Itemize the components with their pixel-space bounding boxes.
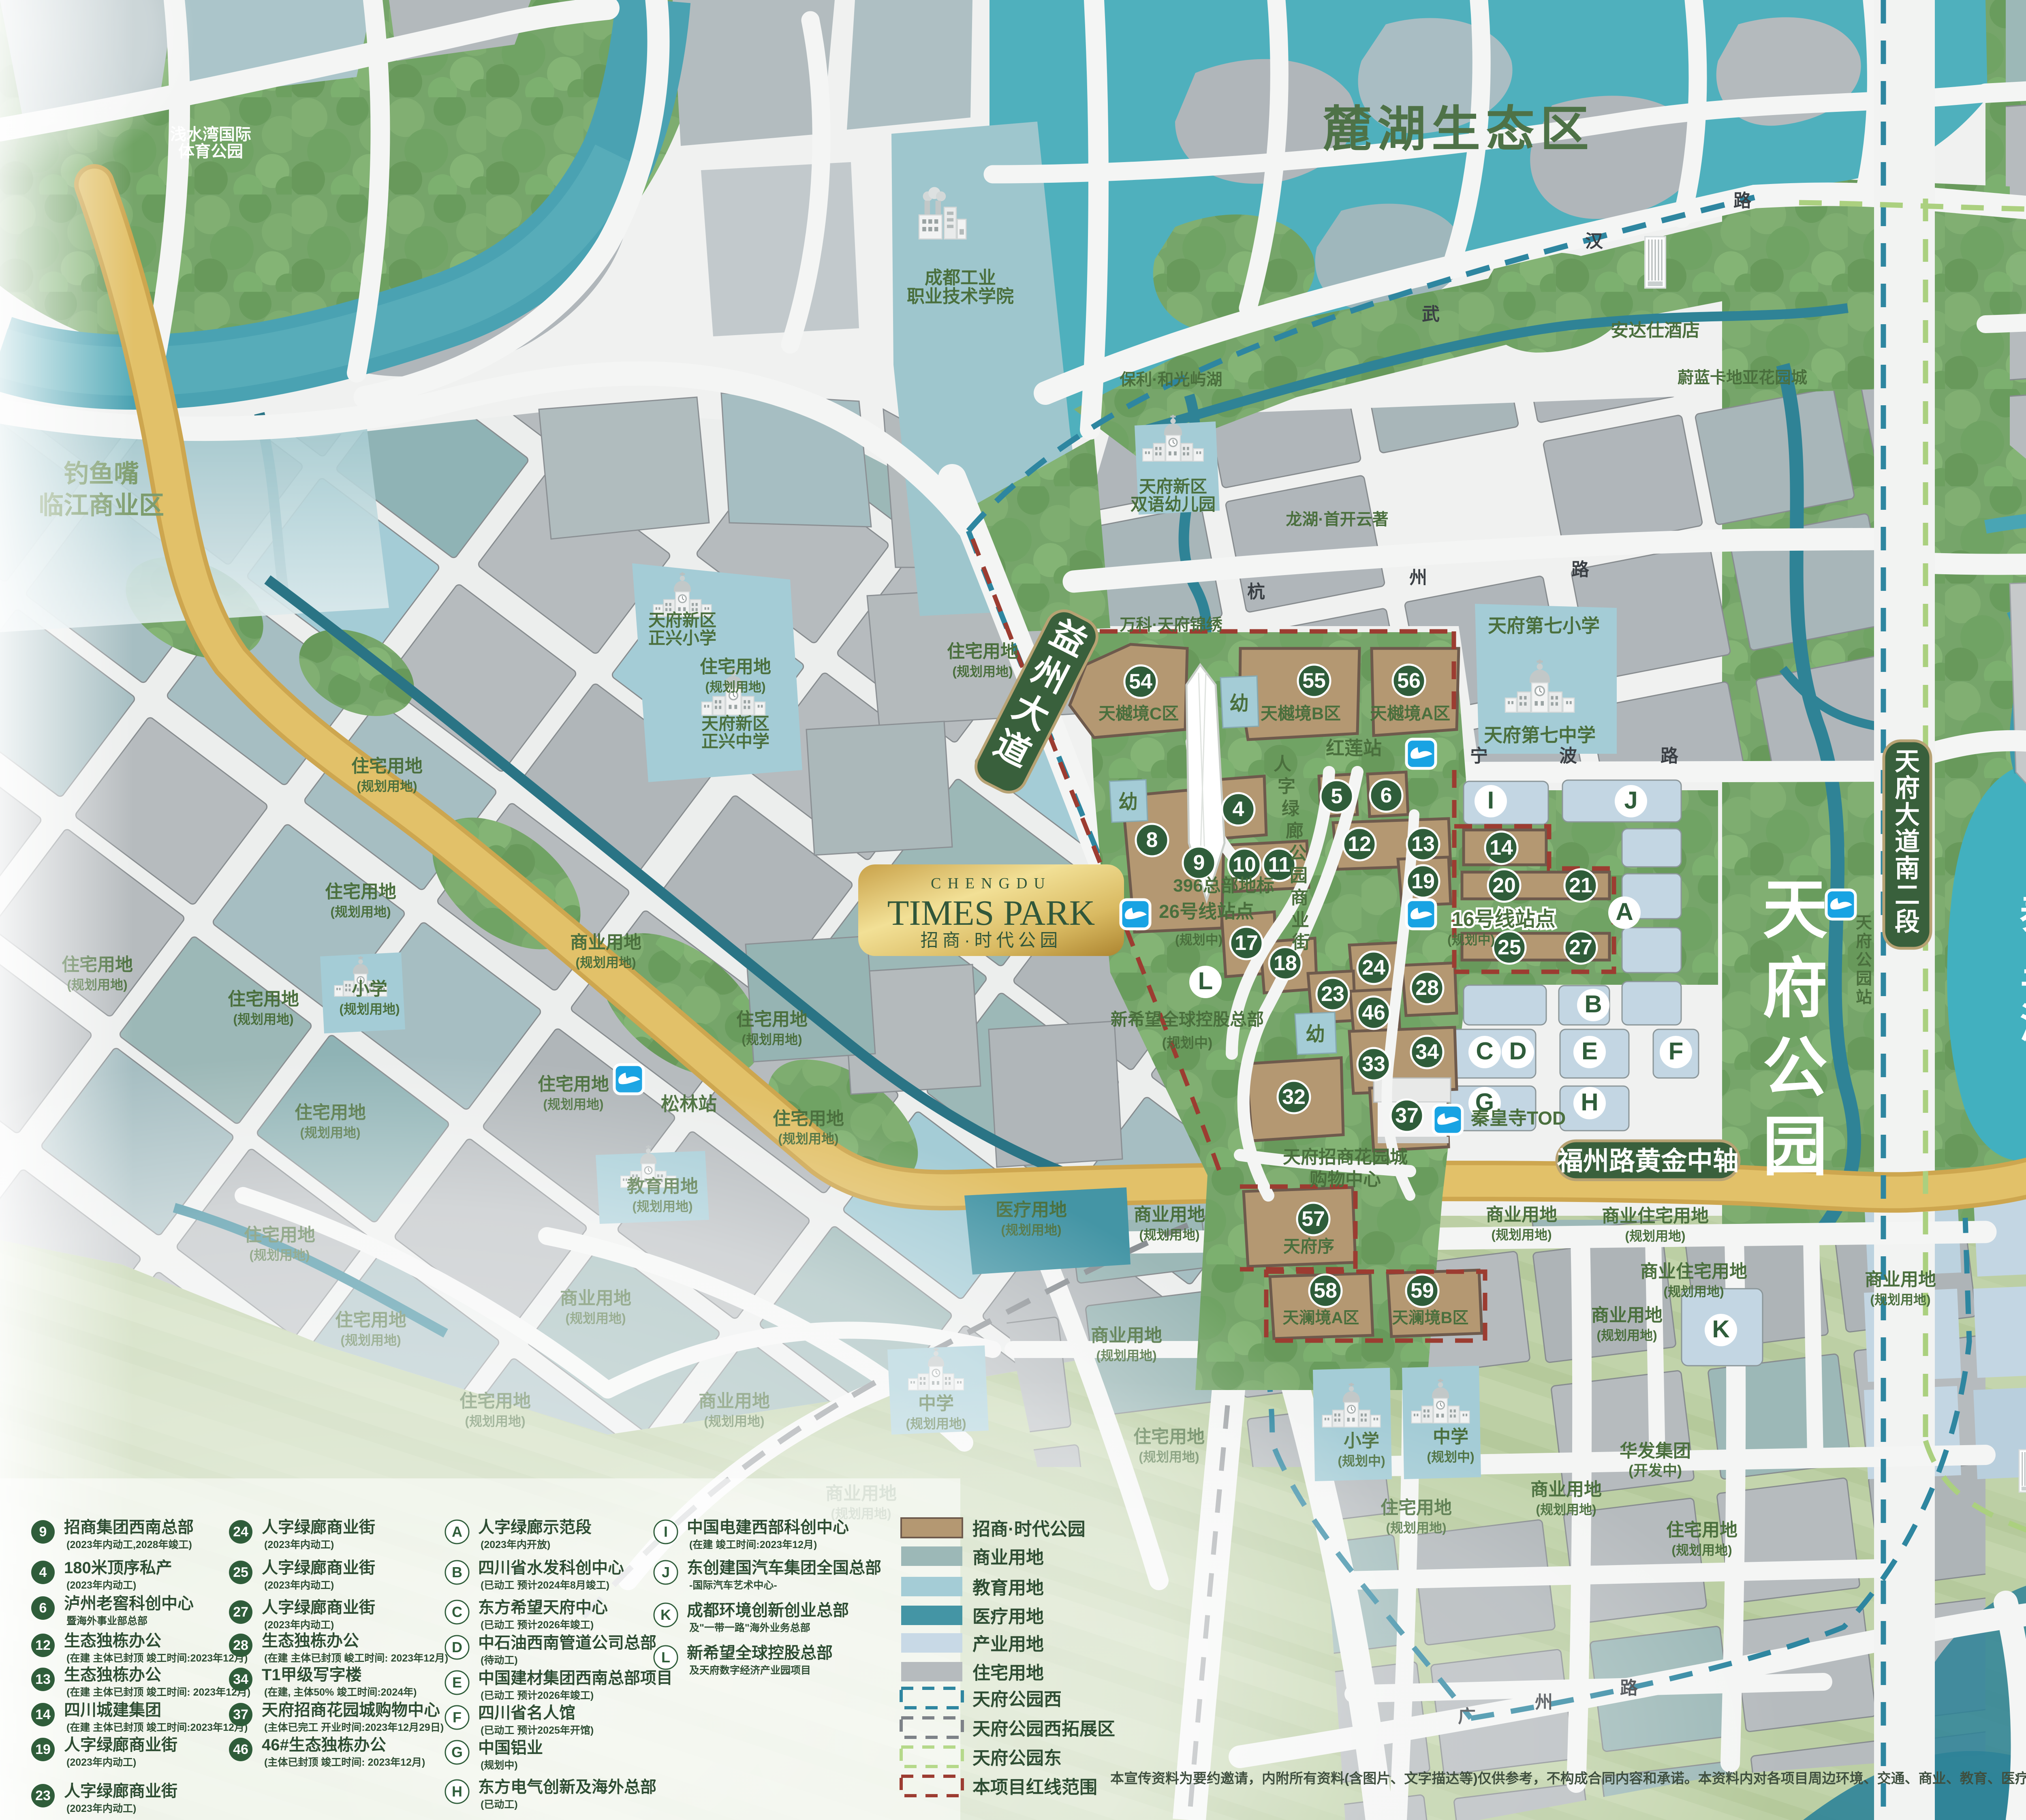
- svg-text:生态独栋办公: 生态独栋办公: [262, 1632, 359, 1650]
- svg-text:小学: 小学: [352, 979, 387, 999]
- svg-text:天府公园西: 天府公园西: [972, 1690, 1062, 1709]
- svg-text:H: H: [452, 1783, 462, 1800]
- svg-text:人字绿廊商业街: 人字绿廊商业街: [262, 1559, 375, 1577]
- svg-text:大: 大: [1895, 801, 1920, 829]
- svg-text:正兴小学: 正兴小学: [648, 629, 716, 648]
- svg-text:12: 12: [1348, 832, 1371, 856]
- svg-text:9: 9: [1193, 851, 1205, 875]
- svg-text:产业用地: 产业用地: [972, 1634, 1044, 1654]
- svg-text:4: 4: [39, 1565, 47, 1580]
- svg-text:园: 园: [1290, 866, 1308, 885]
- svg-text:25: 25: [233, 1565, 248, 1580]
- svg-text:万科·天府锦绣: 万科·天府锦绣: [1120, 616, 1222, 634]
- svg-text:58: 58: [1314, 1279, 1337, 1302]
- svg-text:(规划中): (规划中): [1175, 932, 1222, 947]
- svg-text:及天府数字经济产业园项目: 及天府数字经济产业园项目: [689, 1664, 811, 1676]
- svg-text:(规划用地): (规划用地): [330, 905, 391, 919]
- svg-text:A: A: [1616, 898, 1633, 925]
- svg-text:幼: 幼: [1306, 1024, 1325, 1045]
- svg-text:双语幼儿园: 双语幼儿园: [1131, 495, 1216, 514]
- svg-text:南: 南: [1895, 855, 1920, 883]
- svg-text:住宅用地: 住宅用地: [700, 657, 771, 677]
- svg-text:天樾境A区: 天樾境A区: [1370, 704, 1450, 723]
- svg-text:(规划中): (规划中): [1162, 1035, 1213, 1051]
- svg-text:56: 56: [1397, 669, 1421, 693]
- svg-text:路: 路: [1571, 560, 1590, 580]
- svg-text:中国电建西部科创中心: 中国电建西部科创中心: [687, 1518, 849, 1536]
- svg-text:46: 46: [233, 1742, 248, 1757]
- svg-text:路: 路: [1661, 746, 1679, 766]
- svg-text:9: 9: [39, 1524, 47, 1540]
- svg-text:5: 5: [1331, 785, 1343, 808]
- svg-text:(规划用地): (规划用地): [1671, 1543, 1732, 1557]
- svg-text:46#生态独栋办公: 46#生态独栋办公: [262, 1736, 386, 1754]
- svg-text:F: F: [1669, 1037, 1684, 1065]
- svg-text:(2023年内动工): (2023年内动工): [66, 1579, 136, 1591]
- svg-text:商业住宅用地: 商业住宅用地: [1640, 1262, 1747, 1281]
- svg-text:秦: 秦: [2020, 892, 2026, 937]
- svg-text:(在建 主体已封顶 峻工时间: 2023年12月): (在建 主体已封顶 峻工时间: 2023年12月): [264, 1652, 448, 1664]
- svg-text:(主体已完工 开业时间:2023年12月29日): (主体已完工 开业时间:2023年12月29日): [264, 1722, 444, 1733]
- svg-text:G: G: [451, 1744, 463, 1760]
- svg-text:东方希望天府中心: 东方希望天府中心: [478, 1599, 608, 1617]
- svg-text:红莲站: 红莲站: [1326, 738, 1382, 759]
- svg-text:(规划用地): (规划用地): [339, 1002, 400, 1016]
- svg-text:(在建 主体已封顶 竣工时间: 2023年12月): (在建 主体已封顶 竣工时间: 2023年12月): [66, 1686, 250, 1698]
- svg-text:(规划用地): (规划用地): [742, 1032, 802, 1047]
- svg-text:27: 27: [233, 1604, 248, 1620]
- svg-text:(在建 主体已封顶 竣工时间:2023年12月): (在建 主体已封顶 竣工时间:2023年12月): [66, 1652, 248, 1664]
- svg-text:人字绿廊商业街: 人字绿廊商业街: [64, 1782, 177, 1800]
- svg-text:A: A: [452, 1523, 462, 1540]
- svg-text:中国铝业: 中国铝业: [478, 1739, 543, 1757]
- svg-text:14: 14: [1490, 836, 1513, 860]
- svg-text:道: 道: [1895, 828, 1920, 856]
- svg-text:二: 二: [1895, 881, 1920, 909]
- svg-text:(已动工): (已动工): [481, 1799, 518, 1810]
- svg-text:东方电气创新及海外总部: 东方电气创新及海外总部: [478, 1778, 656, 1796]
- svg-text:26号线站点: 26号线站点: [1159, 901, 1254, 922]
- svg-text:住宅用地: 住宅用地: [228, 989, 299, 1009]
- svg-text:(2023年内动工): (2023年内动工): [264, 1579, 334, 1591]
- svg-text:福州路黄金中轴: 福州路黄金中轴: [1557, 1146, 1739, 1176]
- svg-text:波: 波: [1559, 746, 1577, 766]
- svg-text:杭: 杭: [1247, 582, 1265, 602]
- svg-text:字: 字: [1278, 776, 1295, 796]
- svg-text:泸州老窖科创中心: 泸州老窖科创中心: [64, 1595, 194, 1613]
- svg-text:天澜境B区: 天澜境B区: [1392, 1309, 1469, 1327]
- svg-text:(主体已封顶 竣工时间: 2023年12月): (主体已封顶 竣工时间: 2023年12月): [264, 1756, 425, 1768]
- svg-text:公: 公: [1856, 951, 1872, 969]
- svg-text:(开发中): (开发中): [1628, 1462, 1682, 1479]
- svg-text:天府序: 天府序: [1283, 1237, 1334, 1256]
- svg-text:(在建, 主体50% 竣工时间:2024年): (在建, 主体50% 竣工时间:2024年): [264, 1686, 417, 1698]
- svg-text:购物中心: 购物中心: [1310, 1170, 1381, 1189]
- svg-text:天樾境B区: 天樾境B区: [1261, 704, 1341, 723]
- svg-text:E: E: [1581, 1037, 1598, 1065]
- svg-text:天: 天: [1763, 873, 1827, 946]
- svg-text:(已动工 预计2025年开馆): (已动工 预计2025年开馆): [481, 1724, 594, 1736]
- svg-text:天府新区: 天府新区: [701, 714, 769, 733]
- svg-text:6: 6: [1381, 784, 1392, 807]
- svg-text:(2023年内动工): (2023年内动工): [66, 1803, 136, 1814]
- svg-text:(已动工 预计2024年8月竣工): (已动工 预计2024年8月竣工): [481, 1579, 609, 1591]
- svg-text:正兴中学: 正兴中学: [701, 732, 769, 751]
- svg-text:人: 人: [1274, 754, 1291, 774]
- svg-text:J: J: [1624, 787, 1637, 814]
- svg-text:天樾境C区: 天樾境C区: [1098, 704, 1179, 723]
- svg-text:秦皇寺TOD: 秦皇寺TOD: [1470, 1108, 1566, 1129]
- svg-text:武: 武: [1422, 304, 1440, 324]
- svg-text:段: 段: [1895, 908, 1920, 936]
- svg-text:396总部地标: 396总部地标: [1173, 876, 1274, 896]
- svg-text:天府新区: 天府新区: [648, 611, 716, 630]
- svg-text:人字绿廊商业街: 人字绿廊商业街: [262, 1599, 375, 1617]
- svg-text:住宅用地: 住宅用地: [1666, 1520, 1737, 1540]
- svg-text:生态独栋办公: 生态独栋办公: [64, 1632, 161, 1650]
- svg-text:商业用地: 商业用地: [1591, 1305, 1663, 1325]
- svg-text:(已动工 预计2026年竣工): (已动工 预计2026年竣工): [481, 1690, 594, 1701]
- svg-text:(已动工 预计2026年竣工): (已动工 预计2026年竣工): [481, 1619, 594, 1631]
- svg-text:天府新区: 天府新区: [1139, 477, 1207, 496]
- svg-text:商: 商: [1291, 888, 1308, 908]
- svg-text:保利·和光屿湖: 保利·和光屿湖: [1120, 371, 1222, 389]
- svg-text:四川省名人馆: 四川省名人馆: [478, 1704, 575, 1722]
- svg-text:州: 州: [1409, 568, 1427, 588]
- svg-text:(规划用地): (规划用地): [1491, 1228, 1552, 1242]
- svg-text:商业用地: 商业用地: [1486, 1205, 1557, 1225]
- svg-text:K: K: [660, 1606, 671, 1623]
- svg-text:F: F: [453, 1709, 462, 1726]
- svg-text:L: L: [1198, 967, 1213, 994]
- svg-text:业: 业: [1291, 910, 1309, 930]
- svg-text:(规划用地): (规划用地): [1663, 1284, 1724, 1299]
- svg-text:55: 55: [1302, 669, 1326, 693]
- svg-text:4: 4: [1233, 798, 1244, 821]
- svg-text:21: 21: [1569, 874, 1592, 897]
- svg-text:住宅用地: 住宅用地: [351, 756, 423, 776]
- svg-text:16号线站点: 16号线站点: [1452, 908, 1556, 930]
- svg-text:24: 24: [1362, 956, 1385, 980]
- svg-text:商业用地: 商业用地: [1865, 1270, 1936, 1290]
- svg-text:中石油西南管道公司总部: 中石油西南管道公司总部: [478, 1634, 656, 1652]
- svg-text:34: 34: [233, 1672, 248, 1687]
- svg-text:13: 13: [35, 1672, 51, 1687]
- svg-text:东创建国汽车集团全国总部: 东创建国汽车集团全国总部: [687, 1559, 881, 1577]
- svg-text:安达仕酒店: 安达仕酒店: [1611, 321, 1700, 340]
- svg-text:教育用地: 教育用地: [972, 1578, 1044, 1598]
- svg-text:24: 24: [233, 1524, 248, 1540]
- svg-text:住宅用地: 住宅用地: [947, 642, 1018, 661]
- svg-text:37: 37: [233, 1707, 248, 1722]
- svg-text:32: 32: [1282, 1085, 1306, 1109]
- svg-text:天府第七中学: 天府第七中学: [1484, 725, 1596, 746]
- svg-text:(在建 主体已封顶 竣工时间:2023年12月): (在建 主体已封顶 竣工时间:2023年12月): [66, 1722, 248, 1733]
- svg-text:蔚蓝卡地亚花园城: 蔚蓝卡地亚花园城: [1678, 369, 1807, 387]
- svg-text:天: 天: [1856, 914, 1872, 932]
- svg-text:汉: 汉: [1585, 231, 1603, 251]
- svg-text:28: 28: [233, 1638, 248, 1653]
- svg-text:(规划中): (规划中): [1447, 932, 1495, 947]
- svg-text:(规划用地): (规划用地): [233, 1012, 293, 1027]
- svg-text:19: 19: [35, 1742, 51, 1757]
- svg-text:C: C: [452, 1604, 462, 1620]
- svg-text:I: I: [1487, 787, 1494, 814]
- svg-text:14: 14: [35, 1707, 51, 1722]
- svg-text:天: 天: [1895, 748, 1920, 776]
- svg-text:麓湖生态区: 麓湖生态区: [1323, 102, 1594, 156]
- svg-text:天府招商花园城购物中心: 天府招商花园城购物中心: [262, 1701, 440, 1719]
- svg-text:体育公园: 体育公园: [178, 143, 243, 160]
- svg-text:人字绿廊示范段: 人字绿廊示范段: [478, 1518, 592, 1536]
- svg-text:住宅用地: 住宅用地: [972, 1663, 1044, 1683]
- svg-text:37: 37: [1395, 1104, 1419, 1127]
- svg-text:新希望全球控股总部: 新希望全球控股总部: [687, 1644, 833, 1662]
- svg-text:(2023年内动工): (2023年内动工): [66, 1756, 136, 1768]
- svg-text:绿: 绿: [1282, 799, 1300, 819]
- svg-text:TIMES PARK: TIMES PARK: [887, 894, 1095, 933]
- svg-text:23: 23: [1321, 982, 1344, 1006]
- svg-text:招商·时代公园: 招商·时代公园: [972, 1519, 1086, 1539]
- svg-text:33: 33: [1362, 1052, 1385, 1076]
- svg-text:园: 园: [1763, 1110, 1827, 1183]
- svg-text:(规划用地): (规划用地): [1139, 1228, 1199, 1242]
- svg-text:(规划中): (规划中): [481, 1760, 518, 1771]
- svg-text:25: 25: [1498, 936, 1521, 959]
- svg-text:商业用地: 商业用地: [1134, 1205, 1205, 1225]
- svg-text:34: 34: [1415, 1040, 1439, 1064]
- svg-text:J: J: [662, 1564, 670, 1580]
- svg-text:B: B: [1584, 990, 1602, 1018]
- svg-text:(在建 竣工时间:2023年12月): (在建 竣工时间:2023年12月): [689, 1539, 817, 1551]
- svg-text:路: 路: [1733, 191, 1752, 211]
- svg-text:(规划用地): (规划用地): [705, 680, 765, 694]
- svg-text:本宣传资料为要约邀请，内附所有资料(含图片、文字描达等)仅供: 本宣传资料为要约邀请，内附所有资料(含图片、文字描达等)仅供参考，不构成合同内容…: [1110, 1771, 2026, 1786]
- svg-text:17: 17: [1235, 931, 1258, 955]
- svg-text:宁: 宁: [1470, 746, 1488, 766]
- svg-text:住宅用地: 住宅用地: [325, 882, 396, 902]
- svg-text:住宅用地: 住宅用地: [736, 1009, 808, 1029]
- svg-text:新希望全球控股总部: 新希望全球控股总部: [1111, 1010, 1264, 1029]
- svg-text:街: 街: [1292, 932, 1310, 952]
- svg-text:CHENGDU: CHENGDU: [931, 875, 1051, 892]
- svg-text:华发集团: 华发集团: [1620, 1441, 1691, 1461]
- svg-text:D: D: [452, 1639, 462, 1655]
- svg-text:(2023年内动工,2028年竣工): (2023年内动工,2028年竣工): [66, 1539, 192, 1551]
- svg-text:H: H: [1581, 1089, 1598, 1116]
- svg-text:天澜境A区: 天澜境A区: [1283, 1309, 1359, 1327]
- svg-text:天府公园西拓展区: 天府公园西拓展区: [972, 1719, 1115, 1739]
- svg-text:(2023年内动工): (2023年内动工): [264, 1619, 334, 1631]
- svg-text:成都工业: 成都工业: [925, 268, 996, 288]
- svg-text:(规划用地): (规划用地): [1870, 1292, 1930, 1307]
- svg-text:27: 27: [1569, 936, 1592, 959]
- svg-text:46: 46: [1362, 1001, 1385, 1024]
- svg-text:幼: 幼: [1229, 693, 1249, 714]
- svg-text:府: 府: [1895, 774, 1920, 802]
- svg-text:及"一带一路"海外业务总部: 及"一带一路"海外业务总部: [689, 1622, 810, 1634]
- svg-text:成都环境创新创业总部: 成都环境创新创业总部: [687, 1602, 849, 1619]
- svg-text:龙湖·首开云著: 龙湖·首开云著: [1286, 511, 1388, 528]
- svg-text:人字绿廊商业街: 人字绿廊商业街: [262, 1518, 375, 1536]
- svg-text:20: 20: [1492, 874, 1516, 897]
- svg-text:12: 12: [35, 1638, 51, 1653]
- svg-text:四川城建集团: 四川城建集团: [64, 1701, 161, 1719]
- svg-text:人字绿廊商业街: 人字绿廊商业街: [64, 1736, 177, 1754]
- svg-text:公: 公: [1763, 1031, 1827, 1104]
- svg-text:园: 园: [1856, 970, 1872, 988]
- svg-text:6: 6: [39, 1600, 47, 1616]
- svg-text:(规划用地): (规划用地): [575, 955, 636, 970]
- svg-text:T1甲级写字楼: T1甲级写字楼: [262, 1666, 362, 1684]
- svg-text:生态独栋办公: 生态独栋办公: [64, 1666, 161, 1684]
- svg-text:I: I: [664, 1523, 668, 1540]
- svg-text:180米顶序私产: 180米顶序私产: [64, 1559, 172, 1577]
- svg-text:招商·时代公园: 招商·时代公园: [921, 930, 1062, 950]
- svg-text:C: C: [1476, 1037, 1493, 1065]
- svg-text:中国建材集团西南总部项目: 中国建材集团西南总部项目: [478, 1669, 673, 1687]
- svg-text:四川省水发科创中心: 四川省水发科创中心: [478, 1559, 624, 1577]
- svg-text:暨海外事业部总部: 暨海外事业部总部: [66, 1615, 147, 1627]
- svg-text:商业用地: 商业用地: [972, 1548, 1044, 1568]
- svg-text:招商集团西南总部: 招商集团西南总部: [64, 1518, 194, 1536]
- svg-text:天府公园东: 天府公园东: [972, 1748, 1062, 1768]
- svg-text:天府招商花园城: 天府招商花园城: [1283, 1147, 1408, 1167]
- svg-text:-国际汽车艺术中心-: -国际汽车艺术中心-: [689, 1579, 777, 1591]
- svg-text:(规划用地): (规划用地): [952, 664, 1013, 679]
- svg-text:19: 19: [1411, 870, 1435, 893]
- svg-text:府: 府: [1763, 952, 1827, 1025]
- svg-text:站: 站: [1856, 988, 1872, 1006]
- svg-text:28: 28: [1415, 976, 1439, 1000]
- svg-text:商业住宅用地: 商业住宅用地: [1602, 1206, 1709, 1226]
- svg-text:医疗用地: 医疗用地: [972, 1607, 1044, 1627]
- svg-text:8: 8: [1146, 828, 1158, 852]
- svg-text:(待动工): (待动工): [481, 1655, 518, 1666]
- svg-text:天府第七小学: 天府第七小学: [1488, 615, 1600, 636]
- svg-text:(2023年内开放): (2023年内开放): [481, 1539, 550, 1551]
- svg-text:57: 57: [1302, 1207, 1325, 1231]
- svg-text:10: 10: [1233, 853, 1256, 877]
- svg-text:府: 府: [1856, 932, 1872, 950]
- svg-text:职业技术学院: 职业技术学院: [907, 287, 1014, 306]
- svg-text:K: K: [1712, 1315, 1729, 1343]
- svg-text:浅水湾国际: 浅水湾国际: [170, 125, 251, 143]
- svg-text:B: B: [452, 1564, 462, 1580]
- svg-text:(2023年内动工): (2023年内动工): [264, 1539, 334, 1551]
- svg-text:皇: 皇: [2020, 946, 2026, 992]
- svg-text:D: D: [1509, 1037, 1526, 1065]
- svg-text:18: 18: [1274, 952, 1297, 975]
- svg-text:公: 公: [1289, 843, 1307, 863]
- svg-text:(规划用地): (规划用地): [1596, 1328, 1657, 1343]
- svg-text:L: L: [661, 1649, 670, 1666]
- svg-text:11: 11: [1268, 853, 1291, 877]
- svg-text:本项目红线范围: 本项目红线范围: [972, 1777, 1097, 1797]
- svg-text:E: E: [452, 1674, 462, 1691]
- svg-text:13: 13: [1411, 832, 1435, 856]
- svg-text:湖: 湖: [2020, 1001, 2026, 1046]
- svg-text:商业用地: 商业用地: [570, 932, 641, 952]
- svg-text:(规划用地): (规划用地): [357, 779, 417, 793]
- svg-text:廊: 廊: [1286, 821, 1304, 841]
- svg-text:(规划用地): (规划用地): [1625, 1229, 1685, 1243]
- svg-text:54: 54: [1129, 670, 1152, 693]
- svg-text:59: 59: [1411, 1279, 1434, 1302]
- svg-text:幼: 幼: [1118, 791, 1138, 813]
- svg-text:23: 23: [35, 1788, 51, 1803]
